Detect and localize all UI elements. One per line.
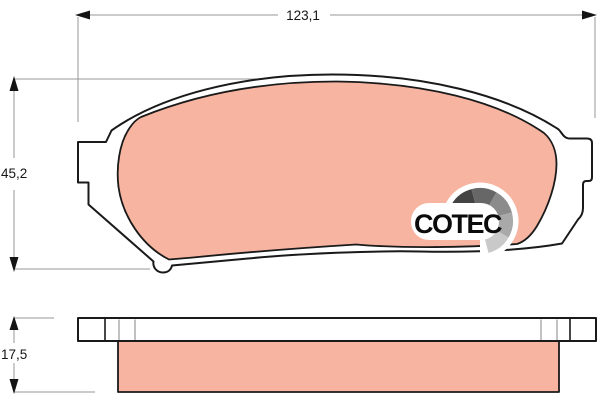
pad-side-view: [78, 318, 596, 392]
arrow-down-icon: [10, 257, 19, 272]
width-dimension-label: 123,1: [286, 8, 320, 23]
logo-text: COTEC: [414, 209, 502, 239]
backplate-side: [78, 318, 596, 341]
thickness-dimension-label: 17,5: [1, 347, 27, 362]
friction-material-side: [118, 341, 559, 392]
arrow-up-icon: [10, 76, 19, 91]
arrow-left-icon: [75, 11, 90, 20]
pad-back-view: COTEC: [78, 75, 592, 273]
height-dimension-label: 45,2: [1, 166, 27, 181]
brake-pad-drawing: 123,1 45,2 17,5 COT: [0, 0, 600, 400]
